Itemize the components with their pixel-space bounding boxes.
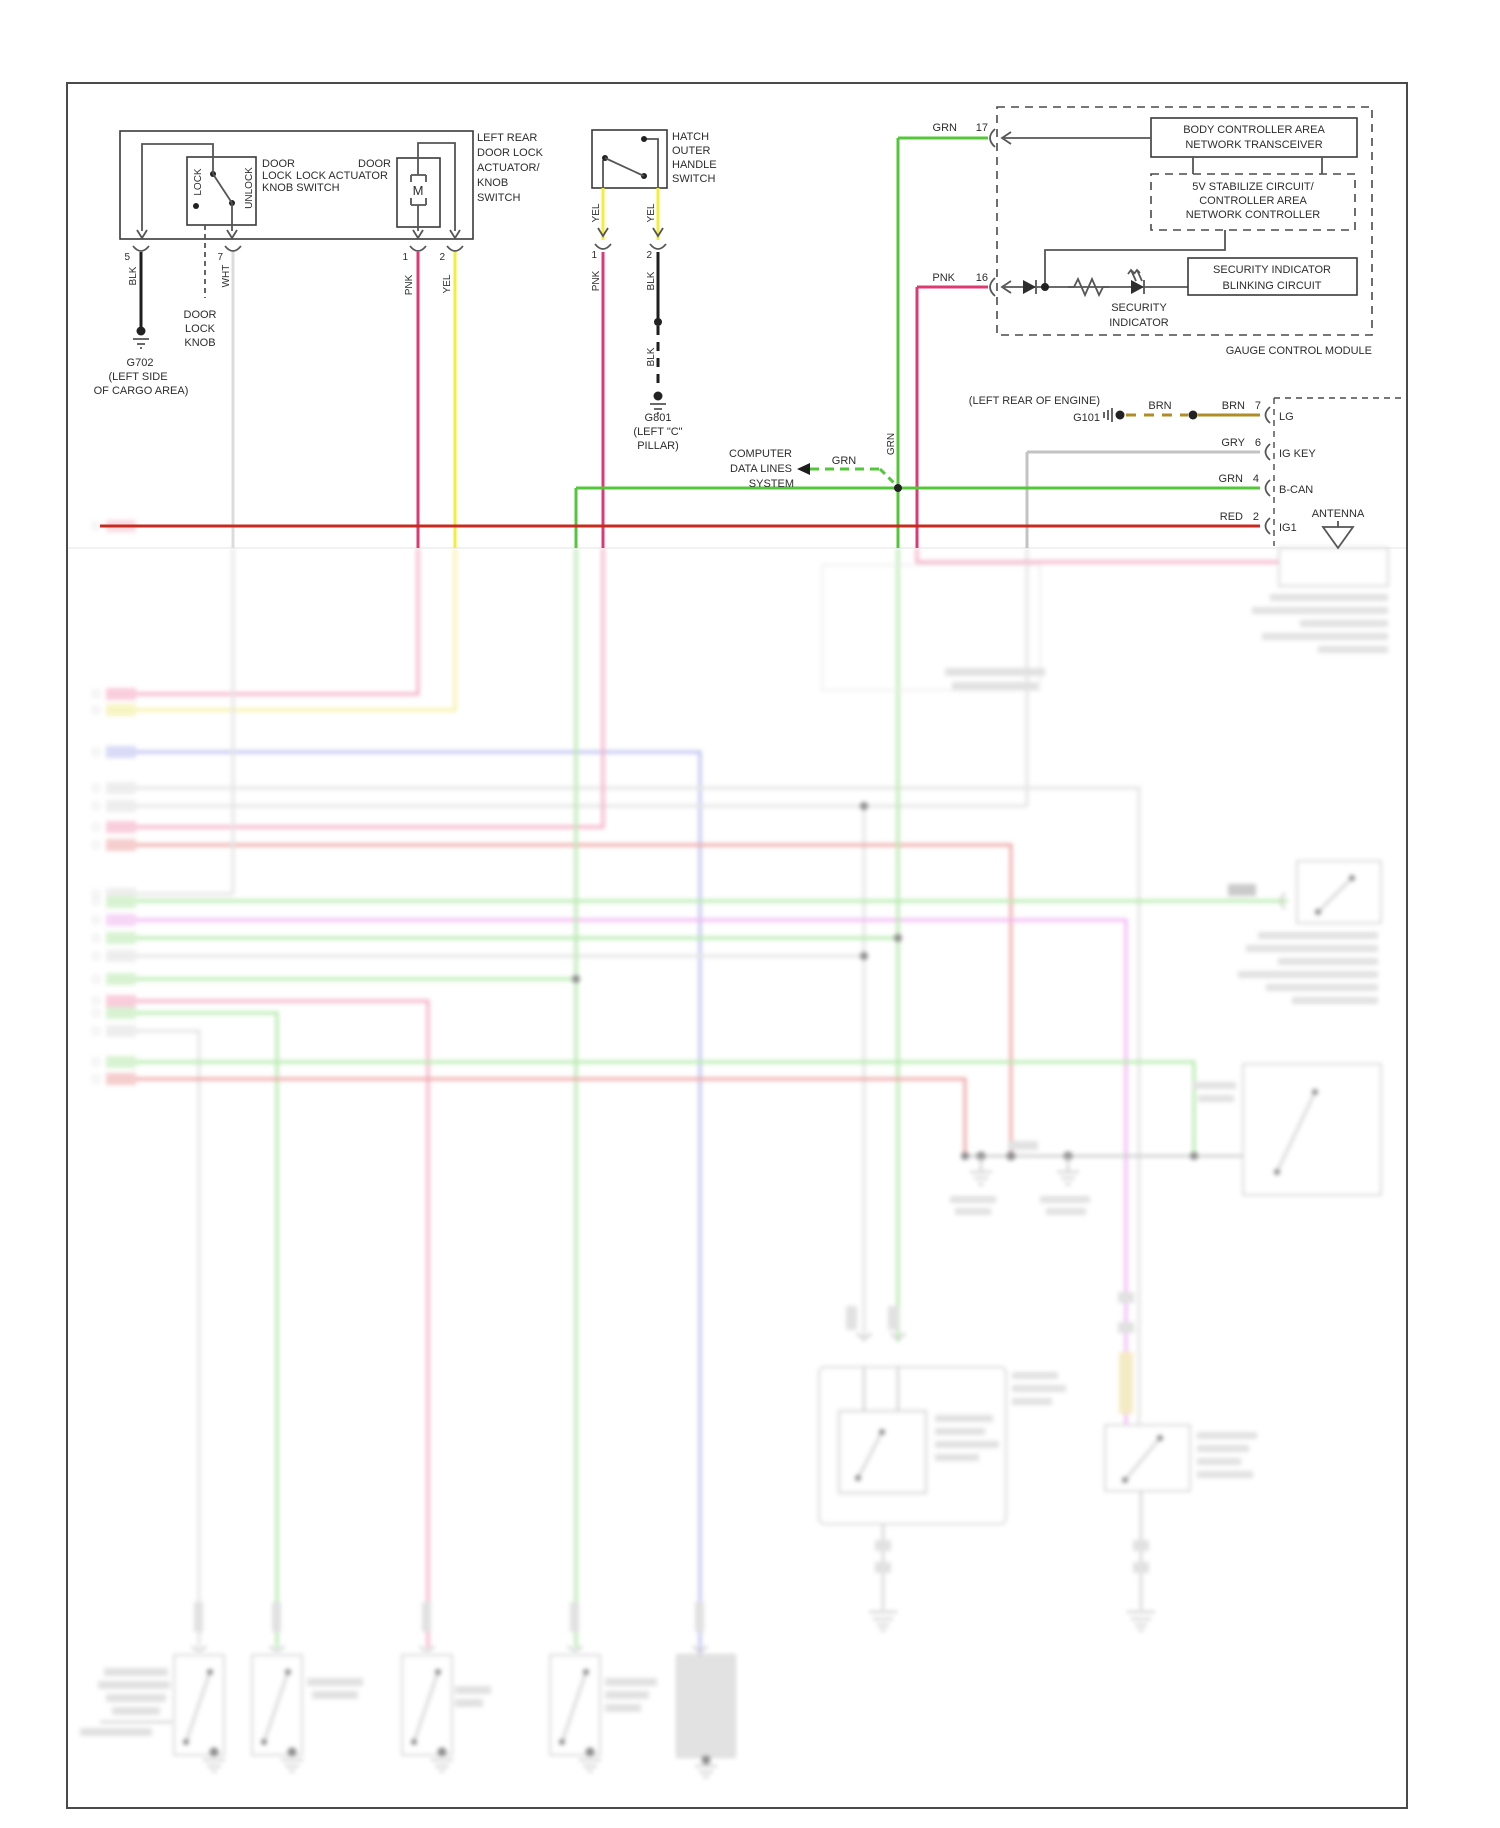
switch-label-3: KNOB SWITCH [262, 182, 340, 194]
gry-label: GRY [1221, 437, 1245, 449]
assembly-title-4: KNOB [477, 177, 508, 189]
pin2-label: 2 [1253, 511, 1259, 523]
grn17-label: GRN [933, 122, 958, 134]
motor-m: M [413, 183, 424, 198]
stab-1: 5V STABILIZE CIRCUIT/ [1192, 181, 1314, 193]
grn-wire-label-blob [1228, 884, 1256, 896]
igkey-label: IG KEY [1279, 448, 1316, 460]
body-ctrl-1: BODY CONTROLLER AREA [1183, 124, 1325, 136]
cdl-1: COMPUTER [729, 448, 792, 460]
switch-2 [252, 1655, 303, 1771]
hatch-title-3: HANDLE [672, 159, 717, 171]
stab-3: NETWORK CONTROLLER [1186, 209, 1321, 221]
engine-loc: (LEFT REAR OF ENGINE) [969, 395, 1100, 407]
knob-2: LOCK [185, 323, 216, 335]
red-label: RED [1220, 511, 1243, 523]
g801-2: (LEFT "C" [633, 426, 682, 438]
pnk16-label: PNK [932, 272, 955, 284]
cdl-2: DATA LINES [730, 463, 792, 475]
body-ctrl-2: NETWORK TRANSCEIVER [1185, 139, 1322, 151]
pin4-label: 4 [1253, 473, 1259, 485]
wht-label: WHT [221, 265, 232, 288]
grn4-label: GRN [1219, 473, 1244, 485]
g101: G101 [1073, 412, 1100, 424]
pin-5: 5 [124, 252, 130, 263]
hatch-title-4: SWITCH [672, 173, 715, 185]
lg-label: LG [1279, 411, 1294, 423]
blink-2: BLINKING CIRCUIT [1222, 280, 1321, 292]
g702-1: G702 [127, 357, 154, 369]
unlock-label: UNLOCK [244, 167, 255, 209]
assembly-title-3: ACTUATOR/ [477, 162, 540, 174]
blk-label: BLK [128, 266, 139, 285]
ig1-label: IG1 [1279, 522, 1297, 534]
hatch-blk2-label: BLK [646, 347, 657, 366]
hatch-title-2: OUTER [672, 145, 711, 157]
knob-3: KNOB [184, 337, 215, 349]
assembly-title-5: SWITCH [477, 192, 520, 204]
wire-yellow-segment [1119, 1352, 1133, 1414]
pin16: 16 [976, 272, 988, 284]
switch-3 [402, 1655, 453, 1771]
lock-label: LOCK [193, 168, 204, 196]
stab-2: CONTROLLER AREA [1199, 195, 1307, 207]
assembly-title-1: LEFT REAR [477, 132, 537, 144]
hatch-blk-label: BLK [646, 271, 657, 290]
hatch-yel-l: YEL [591, 203, 602, 222]
diagram-canvas: LOCK UNLOCK DOOR LOCK KNOB SWITCH DOOR L… [0, 0, 1500, 1828]
hatch-pnk-label: PNK [591, 270, 602, 291]
antenna-label: ANTENNA [1312, 508, 1365, 520]
wiring-diagram-page: LOCK UNLOCK DOOR LOCK KNOB SWITCH DOOR L… [0, 0, 1500, 1828]
cdl-3: SYSTEM [749, 478, 794, 490]
pnk-label: PNK [404, 274, 415, 295]
grn-branch-label: GRN [832, 455, 857, 467]
hatch-pin-2: 2 [646, 250, 652, 261]
switch-1 [174, 1655, 225, 1771]
sec-2: INDICATOR [1109, 317, 1169, 329]
sec-1: SECURITY [1111, 302, 1167, 314]
bcan-label: B-CAN [1279, 484, 1313, 496]
brn-label-2: BRN [1222, 400, 1245, 412]
hatch-yel-r: YEL [646, 203, 657, 222]
brn-label-1: BRN [1148, 400, 1171, 412]
g702-3: OF CARGO AREA) [94, 385, 189, 397]
pin17: 17 [976, 122, 988, 134]
pin-1: 1 [402, 252, 408, 263]
pin7-label: 7 [1255, 400, 1261, 412]
g801-1: G801 [645, 412, 672, 424]
assembly-title-2: DOOR LOCK [477, 147, 544, 159]
module-name: GAUGE CONTROL MODULE [1226, 345, 1372, 357]
pin-7: 7 [217, 252, 223, 263]
switch-4 [550, 1655, 601, 1771]
hatch-title-1: HATCH [672, 131, 709, 143]
switch-label-1: DOOR [262, 158, 295, 170]
blink-1: SECURITY INDICATOR [1213, 264, 1331, 276]
knob-1: DOOR [184, 309, 217, 321]
g801-3: PILLAR) [637, 440, 679, 452]
yel-label: YEL [442, 274, 453, 293]
actuator-label-2: LOCK ACTUATOR [296, 170, 388, 182]
actuator-label-1: DOOR [358, 158, 391, 170]
pin-2: 2 [439, 252, 445, 263]
pin6-label: 6 [1255, 437, 1261, 449]
hatch-pin-1: 1 [591, 250, 597, 261]
switch-label-2: LOCK [262, 170, 293, 182]
page-code-text [80, 1728, 152, 1736]
g702-2: (LEFT SIDE [108, 371, 167, 383]
grn-vertical-label: GRN [886, 433, 897, 455]
